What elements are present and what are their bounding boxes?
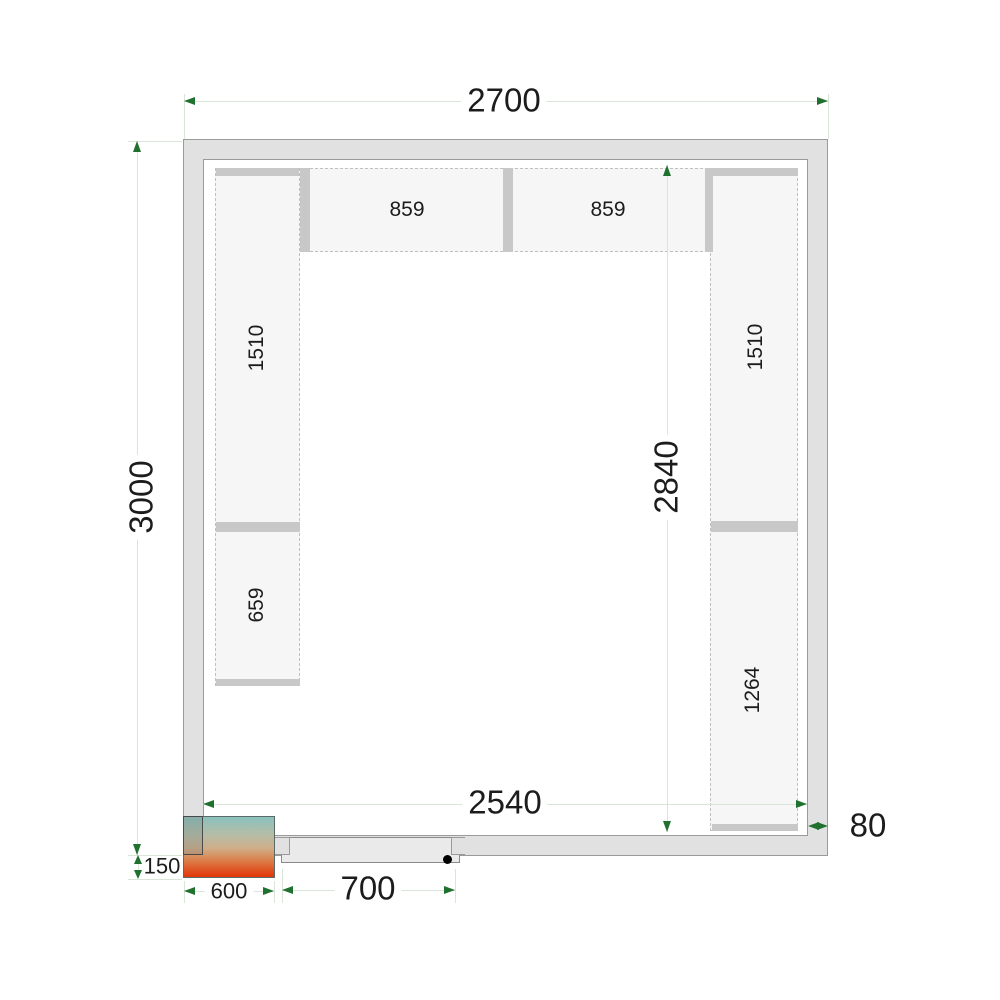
dim-arrow	[444, 886, 455, 894]
dim-arrow	[663, 165, 671, 176]
dim-outer-height: 3000	[125, 454, 160, 539]
dim-arrow	[133, 844, 141, 855]
dim-arrow	[184, 887, 195, 895]
dim-inner-width: 2540	[462, 786, 547, 821]
shelf-label-top-left: 859	[389, 198, 424, 222]
dim-arrow	[203, 800, 214, 808]
dim-arrow	[663, 821, 671, 832]
dim-unit-offset: 150	[144, 854, 181, 877]
extension-line	[455, 869, 456, 903]
door-handle-dot	[443, 855, 452, 864]
door-leaf	[281, 837, 460, 863]
shelf-divider	[216, 522, 300, 532]
wall-corner-overlay	[183, 816, 203, 855]
floor-plan: 859 859 1510 659 1510 1264 2700 3000 254…	[0, 0, 1000, 1000]
dim-wall-thickness: 80	[844, 809, 893, 844]
shelf-label-left-lower: 659	[245, 587, 269, 622]
dim-arrow	[133, 141, 141, 152]
shelf-divider	[711, 521, 798, 532]
extension-line	[274, 881, 275, 903]
dim-arrow	[134, 870, 142, 879]
shelf-cap	[216, 168, 299, 176]
dim-unit-width: 600	[205, 879, 254, 902]
door-frame-left	[273, 837, 290, 855]
dim-arrow	[184, 97, 195, 105]
shelf-cap	[713, 168, 798, 176]
shelf-divider	[300, 168, 310, 252]
shelf-label-left-upper: 1510	[245, 325, 269, 372]
dim-arrow	[796, 800, 807, 808]
dim-arrow	[134, 855, 142, 864]
shelf-cap	[216, 679, 300, 686]
shelf-right-column	[710, 168, 798, 831]
dim-door-opening: 700	[334, 872, 401, 907]
shelf-cap	[712, 824, 798, 831]
dim-outer-width: 2700	[461, 84, 546, 119]
dim-arrow	[817, 822, 828, 830]
dim-arrow	[817, 97, 828, 105]
shelf-label-right-upper: 1510	[744, 324, 768, 371]
shelf-label-top-right: 859	[590, 198, 625, 222]
dim-inner-height: 2840	[650, 434, 685, 519]
dim-arrow	[282, 886, 293, 894]
shelf-label-right-lower: 1264	[741, 667, 765, 714]
dim-arrow	[263, 887, 274, 895]
shelf-divider	[705, 168, 713, 252]
extension-line	[128, 879, 182, 880]
shelf-divider	[503, 168, 513, 252]
door-frame-right	[451, 837, 465, 855]
extension-line	[828, 94, 829, 139]
